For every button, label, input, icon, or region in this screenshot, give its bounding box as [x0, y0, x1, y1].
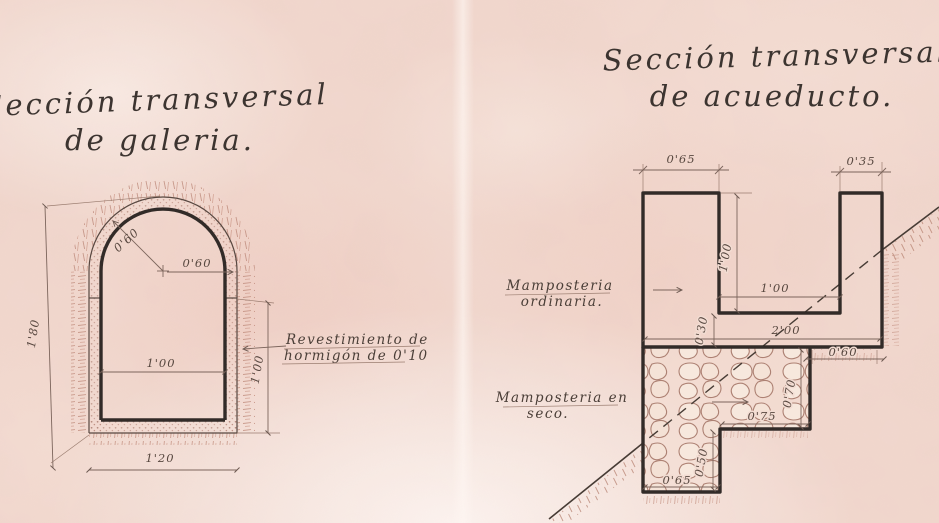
- masonry-ordinary-label-line2: ordinaria.: [521, 294, 603, 310]
- masonry-ordinary-label-line1: Mamposteria: [505, 278, 613, 294]
- lining-stipple-left: [89, 271, 101, 433]
- rock-hatch-floor: [89, 433, 237, 445]
- rock-hatch-right-wall: [237, 271, 255, 433]
- dim-outer-width: 1'20: [145, 451, 174, 465]
- scanned-drawing-sheet: Sección transversal de galeria.: [0, 0, 939, 523]
- dim-right-wall-width: 0'35: [846, 154, 875, 168]
- lining-stipple-right: [225, 271, 237, 433]
- dim-channel-width: 1'00: [760, 281, 789, 295]
- lining-stipple-floor: [89, 420, 237, 433]
- masonry-dry-label-line1: Mamposteria en: [495, 390, 629, 406]
- galeria-title-line2: de galeria.: [65, 123, 255, 157]
- dim-left-wall-width: 0'65: [666, 152, 695, 166]
- dim-ledge: 0'60: [828, 345, 857, 359]
- rock-hatch-left-wall: [71, 271, 89, 433]
- aqueduct-title-line2: de acueducto.: [650, 79, 895, 113]
- dim-inner-width: 1'00: [146, 356, 175, 370]
- dim-total-width: 2'00: [770, 323, 800, 337]
- dim-foot-width: 0'65: [662, 473, 691, 487]
- lining-note-line2: hormigón de 0'10: [284, 348, 429, 364]
- technical-drawing: Sección transversal de galeria.: [0, 0, 939, 523]
- hatch-under-foot: [643, 493, 720, 504]
- earth-hatch-behind-wall: [884, 253, 899, 346]
- lining-note-line1: Revestimiento de: [285, 332, 429, 348]
- dim-foundation-width: 0'75: [747, 409, 776, 423]
- hatch-under-step: [722, 431, 808, 441]
- dim-radius-horizontal: 0'60: [182, 256, 211, 270]
- masonry-dry-label-line2: seco.: [527, 406, 569, 422]
